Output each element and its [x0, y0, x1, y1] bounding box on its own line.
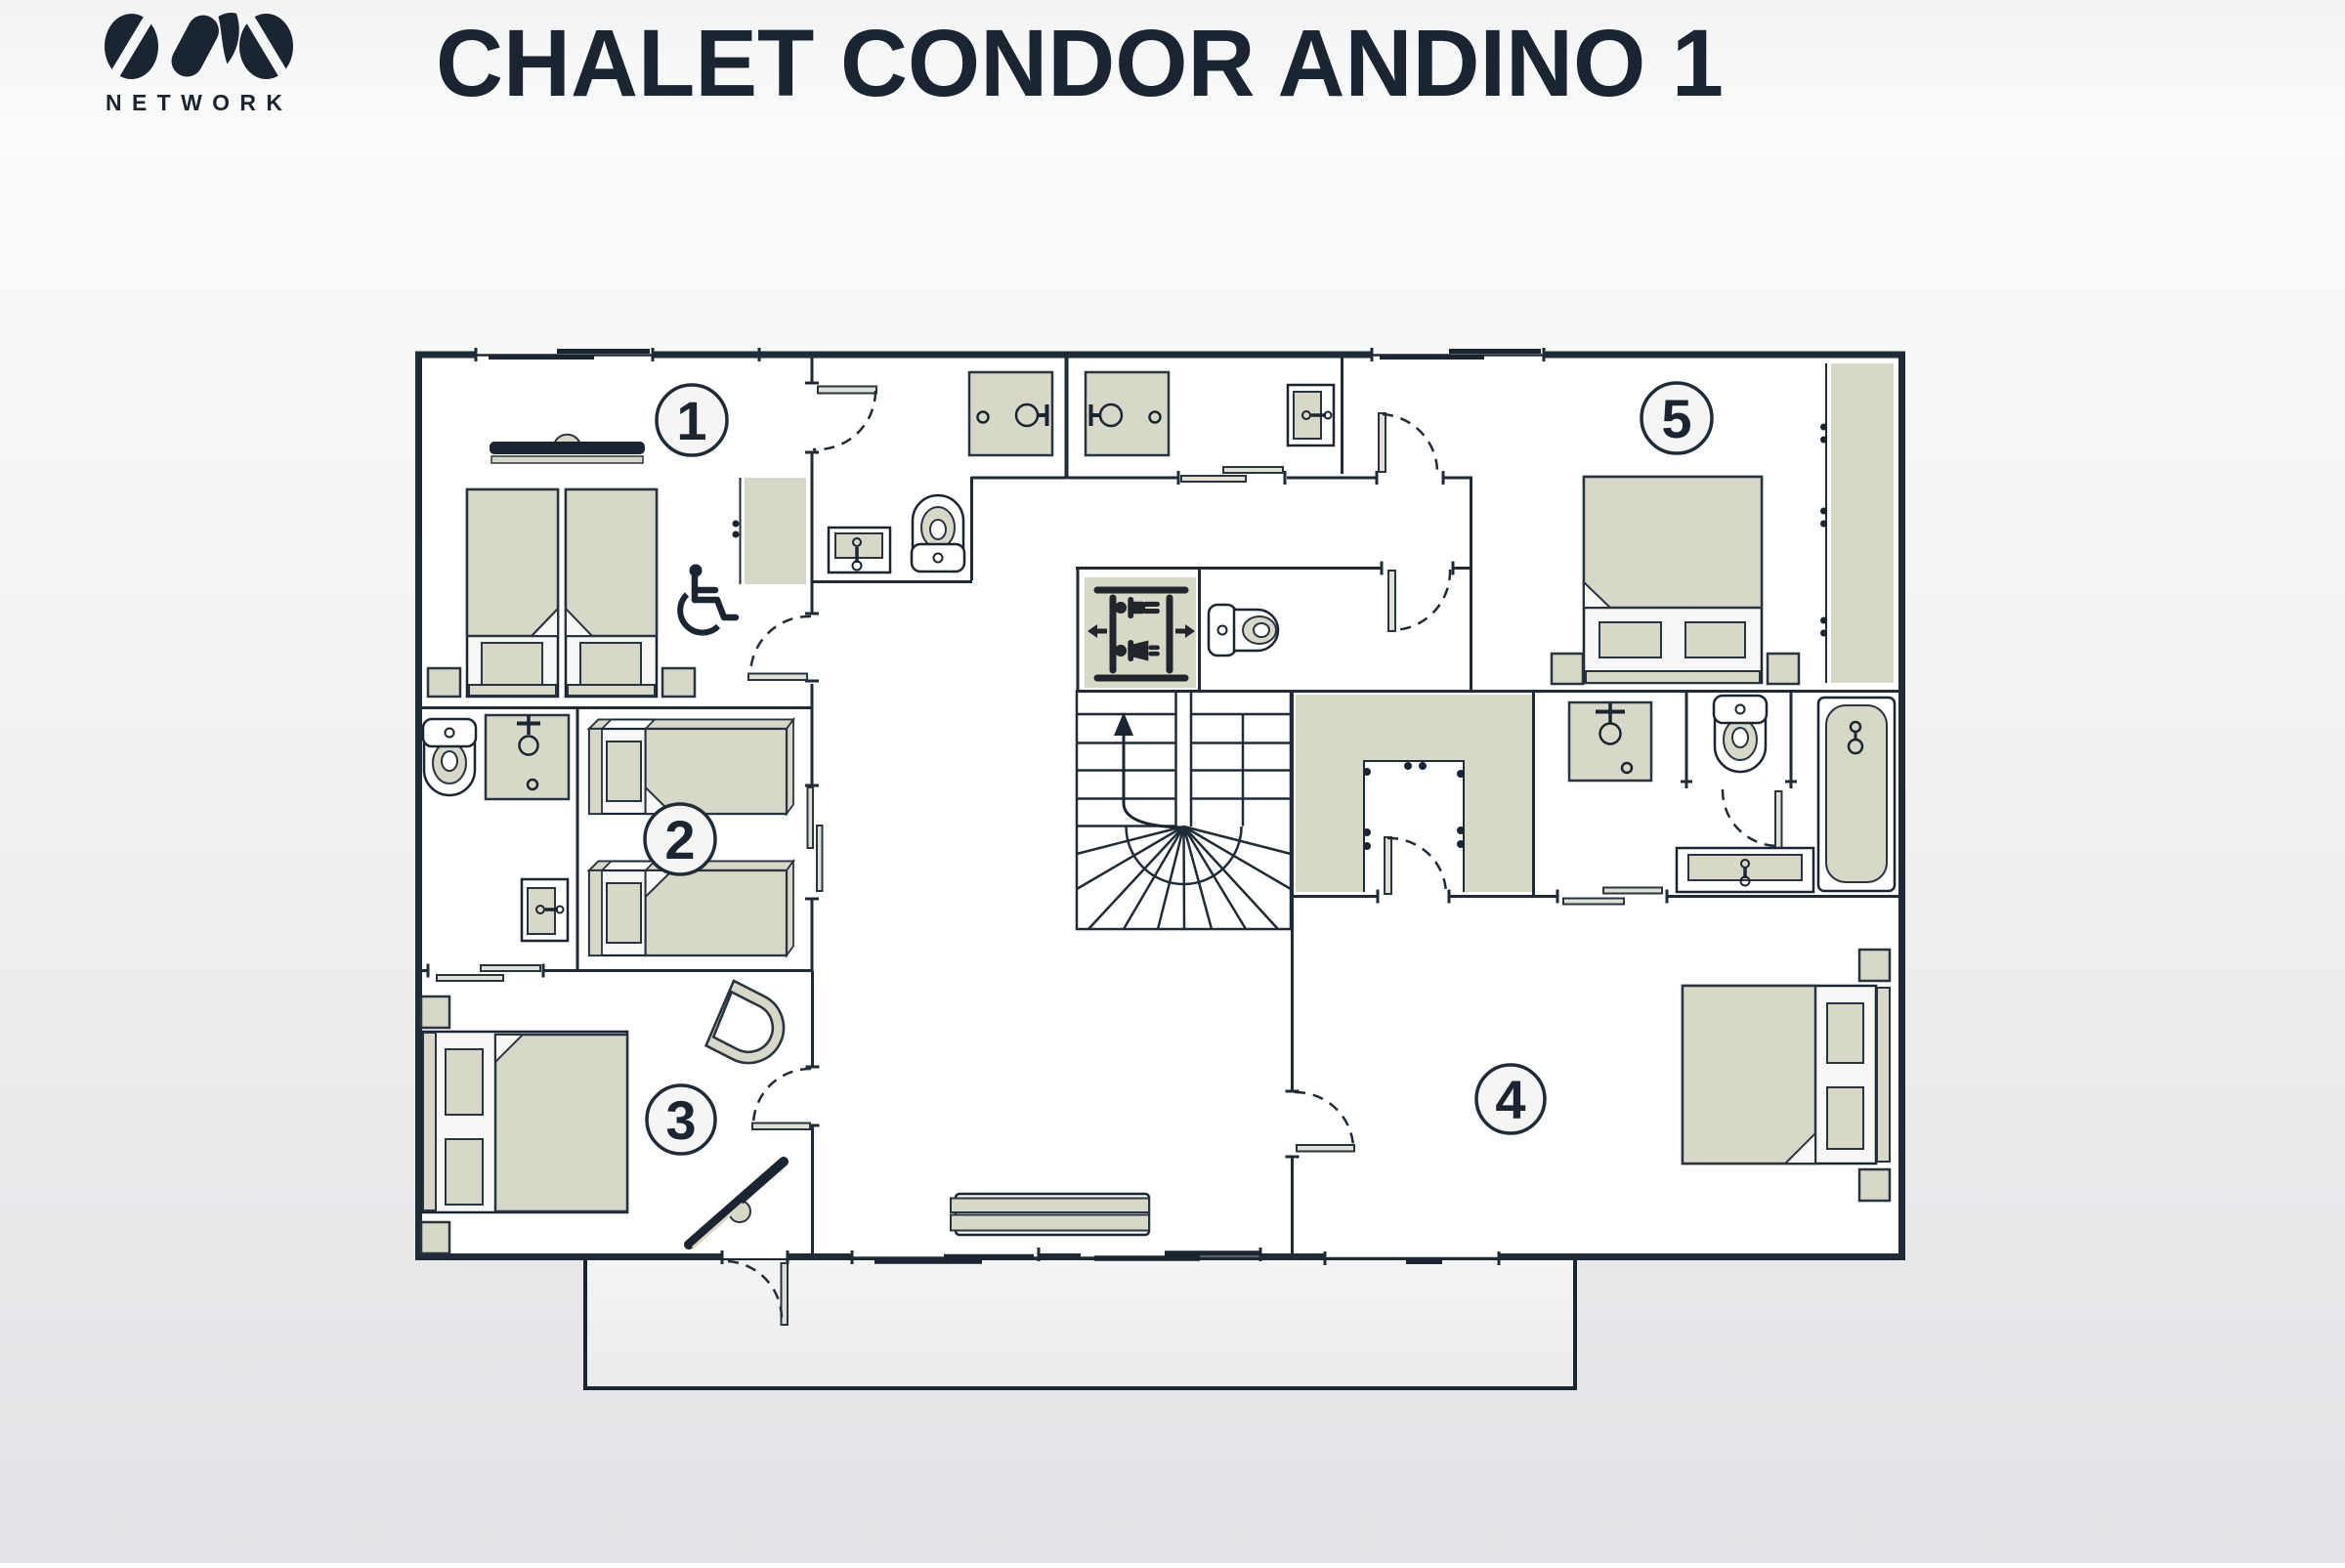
svg-text:1: 1: [676, 390, 706, 451]
svg-text:5: 5: [1661, 388, 1691, 449]
svg-text:CHALET CONDOR ANDINO 1: CHALET CONDOR ANDINO 1: [436, 10, 1724, 116]
svg-text:NETWORK: NETWORK: [106, 90, 295, 115]
svg-text:3: 3: [665, 1089, 696, 1151]
svg-text:2: 2: [664, 809, 695, 870]
svg-text:4: 4: [1495, 1069, 1525, 1130]
